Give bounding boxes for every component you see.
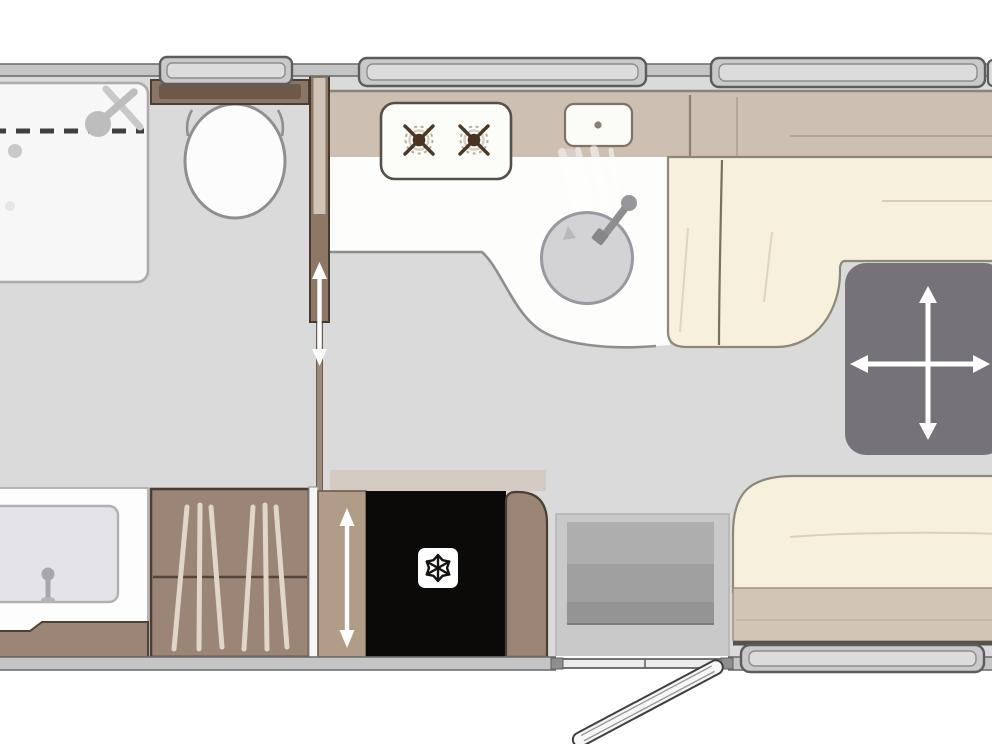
wardrobe [151, 489, 309, 657]
worktop-strip-over-fridge [330, 470, 546, 491]
window-kitchen [359, 58, 646, 86]
end-cabinet [506, 492, 547, 657]
floorplan-canvas [0, 0, 992, 744]
sliding-front-unit [318, 491, 366, 657]
window-front-seat [741, 645, 984, 672]
lower-units [151, 470, 547, 658]
entry-area [556, 514, 729, 658]
entry-doorway [551, 656, 733, 744]
drain-icon [8, 144, 22, 158]
step-2 [567, 564, 714, 602]
window-partial-corner [988, 60, 992, 86]
burner-left [405, 126, 433, 154]
front-seat-base [733, 588, 992, 641]
floorplan-svg [0, 0, 992, 744]
shower [0, 83, 148, 282]
bottom-wall-left [0, 657, 558, 670]
dinette-table [845, 263, 992, 455]
hob-panel [381, 103, 511, 179]
tap-knob [621, 195, 637, 211]
drain-icon-faint [5, 201, 15, 211]
step-3 [567, 602, 714, 624]
burner-center [413, 134, 426, 147]
toilet-cistern-inner [159, 84, 301, 99]
hob [381, 103, 511, 179]
vanity-basin [0, 506, 118, 602]
partition-strip [309, 487, 318, 658]
drainer-plug [594, 121, 601, 128]
toilet-bowl [185, 104, 285, 218]
burner-right [460, 126, 488, 154]
fridge [366, 491, 506, 657]
vanity [0, 488, 148, 657]
sink-bowl [542, 213, 633, 304]
front-seat [733, 476, 992, 646]
burner-center [468, 134, 481, 147]
step-1 [567, 522, 714, 564]
door-panel-inner [314, 78, 326, 214]
window-lounge [711, 58, 985, 87]
window-washroom [160, 57, 292, 84]
door-frame-cap-left [551, 658, 563, 669]
entry-steps [556, 514, 729, 658]
